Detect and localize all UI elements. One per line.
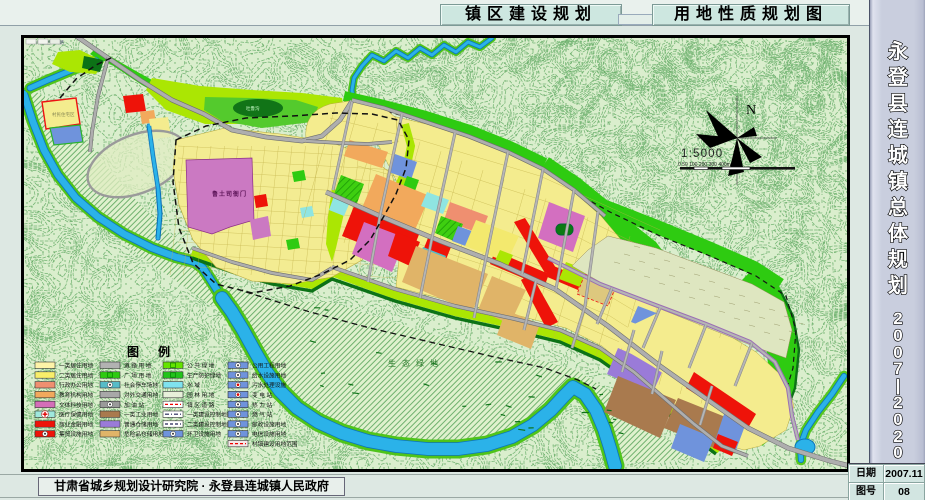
svg-text:公用工程用地: 公用工程用地 (252, 362, 286, 370)
svg-text:N: N (746, 103, 756, 118)
svg-text:鲁土司衙门: 鲁土司衙门 (212, 190, 247, 198)
svg-text:一类居住用地: 一类居住用地 (59, 362, 93, 370)
svg-text:一类工业用地: 一类工业用地 (124, 411, 158, 419)
svg-text:燃 气 站: 燃 气 站 (252, 411, 273, 419)
svg-text:危险品仓储用地: 危险品仓储用地 (124, 430, 164, 438)
svg-text:给水设施用地: 给水设施用地 (252, 371, 286, 379)
svg-text:电信设施用地: 电信设施用地 (252, 430, 286, 438)
svg-text:医疗保健用地: 医疗保健用地 (59, 411, 93, 419)
svg-text:教育机构用地: 教育机构用地 (59, 391, 93, 399)
svg-text:商业金融用地: 商业金融用地 (59, 420, 93, 428)
svg-text:环卫设施用地: 环卫设施用地 (187, 430, 221, 438)
svg-text:1:5000: 1:5000 (681, 148, 723, 160)
svg-text:对外交通用地: 对外交通用地 (124, 391, 158, 399)
svg-text:吐鲁沟: 吐鲁沟 (246, 105, 260, 112)
svg-text:镇 区 道 路: 镇 区 道 路 (187, 401, 215, 409)
svg-text:二类建设控制地区: 二类建设控制地区 (187, 420, 233, 428)
svg-text:道 路 用 地: 道 路 用 地 (124, 362, 152, 370)
svg-text:文体科技用地: 文体科技用地 (59, 401, 93, 409)
svg-text:加 油 站: 加 油 站 (124, 401, 145, 409)
svg-text:二类居住用地: 二类居住用地 (59, 371, 93, 379)
svg-text:普通仓储用地: 普通仓储用地 (124, 420, 158, 428)
svg-text:水 域: 水 域 (187, 381, 200, 389)
svg-text:社会停车场地: 社会停车场地 (124, 381, 158, 389)
svg-text:生产防护绿地: 生产防护绿地 (187, 371, 221, 379)
svg-text:污水处理设施: 污水处理设施 (252, 381, 286, 389)
svg-text:变 电 站: 变 电 站 (252, 391, 273, 399)
svg-text:广 场 用 地: 广 场 用 地 (124, 371, 152, 379)
svg-text:公 共 绿 地: 公 共 绿 地 (187, 362, 215, 370)
svg-text:集贸设施用地: 集贸设施用地 (59, 430, 93, 438)
svg-text:一类建设控制地区: 一类建设控制地区 (187, 411, 233, 419)
svg-text:热 力 站: 热 力 站 (252, 401, 273, 409)
svg-text:村民住宅区: 村民住宅区 (52, 111, 75, 118)
svg-text:园 林 用 地: 园 林 用 地 (187, 391, 215, 399)
svg-text:行政办公用地: 行政办公用地 (59, 381, 93, 389)
svg-text:村镇建设用地范围: 村镇建设用地范围 (252, 440, 298, 448)
svg-text:生态绿地: 生态绿地 (388, 358, 444, 368)
svg-text:邮政设施用地: 邮政设施用地 (252, 420, 286, 428)
svg-text:图例: 图例 (127, 344, 189, 359)
